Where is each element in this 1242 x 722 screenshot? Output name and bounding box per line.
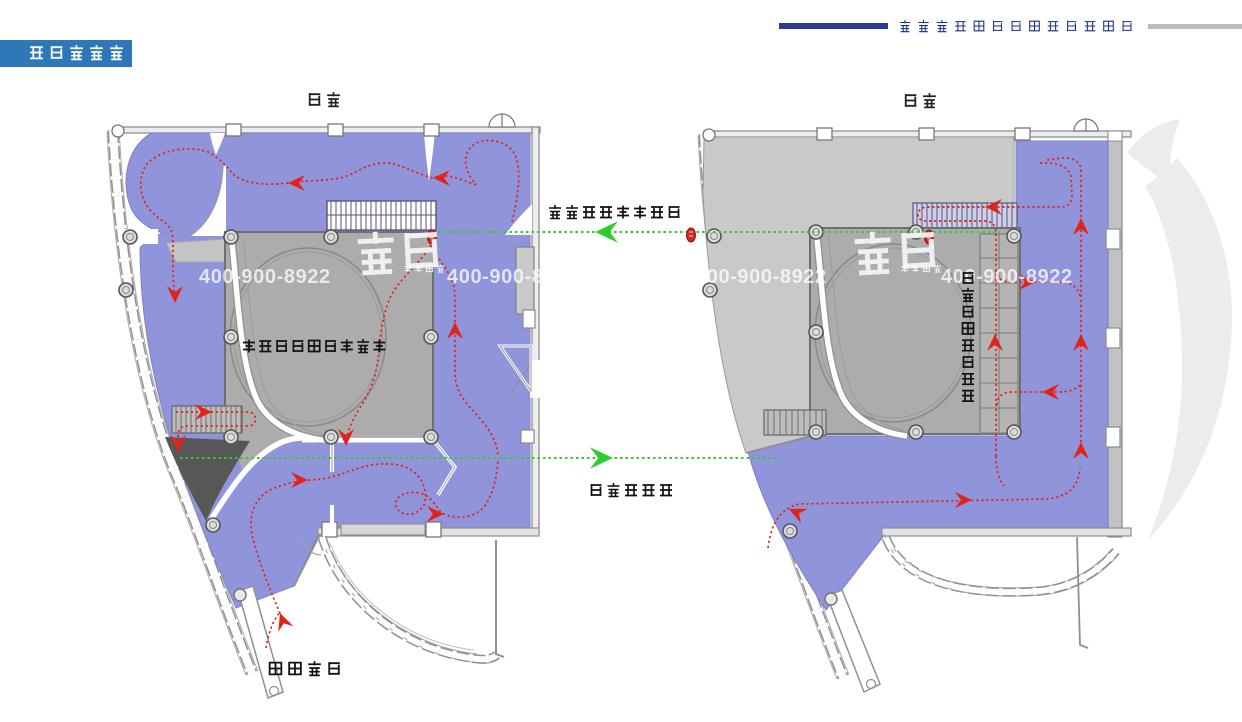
svg-text:400-900-8922: 400-900-8922 — [695, 266, 827, 288]
svg-text:400-900-8922: 400-900-8922 — [199, 266, 331, 288]
svg-text:400-900-8922: 400-900-8922 — [941, 266, 1073, 288]
svg-text:400-900-8922: 400-900-8922 — [447, 266, 579, 288]
